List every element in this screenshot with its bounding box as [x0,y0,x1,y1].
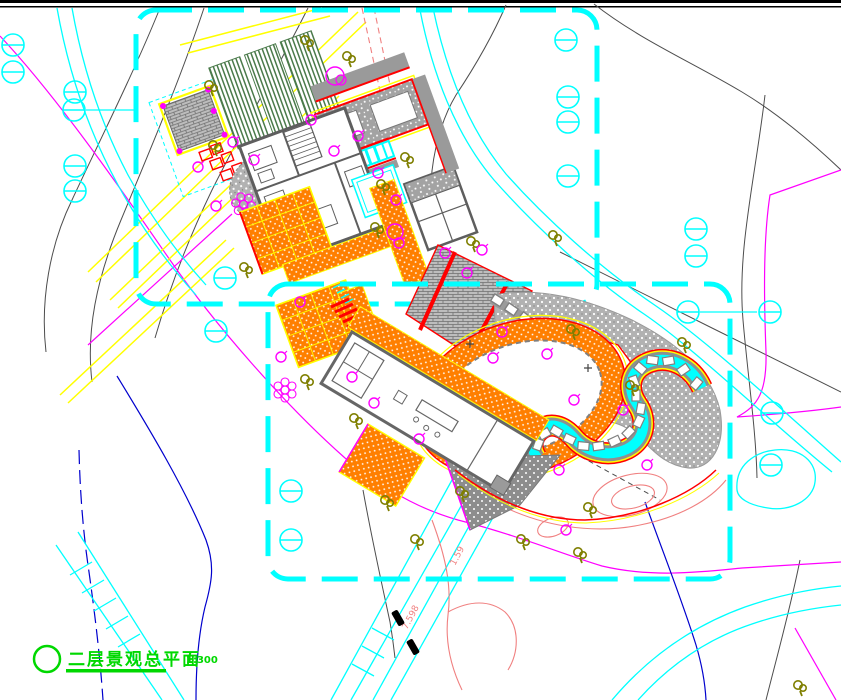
olive-tree-icon [401,153,413,168]
cyan-circle-tree-icon [64,180,86,202]
olive-tree-icon [584,503,596,518]
cyan-circle-tree-icon [214,267,236,289]
drawing-title: 二层景观总平面 [68,649,201,670]
cyan-circle-tree-icon [677,301,699,323]
car-glyph [391,609,405,626]
magenta-shrub-icon [228,136,239,147]
magenta-shrub-icon [477,244,488,255]
sheet-frame [0,0,841,8]
lower-site [315,245,721,530]
cyan-circle-tree-icon [205,320,227,342]
cyan-circle-tree-icon [685,245,707,267]
cyan-circle-tree-icon [760,454,782,476]
magenta-flower-icon [274,378,296,402]
cyan-circle-tree-icon [2,61,24,83]
olive-tree-icon [301,375,313,390]
olive-tree-icon [549,231,561,246]
cad-drawing-canvas: 7.598 1.59 7.598 [0,0,841,700]
cyan-circle-tree-icon [280,529,302,551]
olive-tree-icon [517,535,529,550]
olive-tree-icon [343,52,355,67]
scale-label: 1:300 [186,655,218,666]
cyan-circle-tree-icon [557,165,579,187]
cyan-circle-tree-icon [557,86,579,108]
site-plan-svg: 7.598 1.59 7.598 [0,0,841,700]
car-glyph [406,638,420,655]
cyan-circle-tree-icon [555,29,577,51]
cyan-circle-tree-icon [557,111,579,133]
title-underline [66,669,166,673]
cyan-circle-tree-icon [2,34,24,56]
olive-tree-icon [240,263,252,278]
cyan-circle-tree-icon [64,155,86,177]
detail-bubble-icon [34,646,60,672]
cyan-circle-tree-icon [759,301,781,323]
cyan-circle-tree-icon [280,480,302,502]
magenta-shrub-icon [276,351,287,362]
cyan-circle-tree-icon [685,218,707,240]
magenta-shrub-icon [561,524,572,535]
magenta-shrub-icon [211,200,222,211]
olive-tree-icon [350,414,362,429]
magenta-shrub-icon [642,459,653,470]
elevation-label: 1.59 [449,545,467,568]
title-block: 二层景观总平面 1:300 [34,646,218,673]
olive-tree-icon [794,681,806,696]
